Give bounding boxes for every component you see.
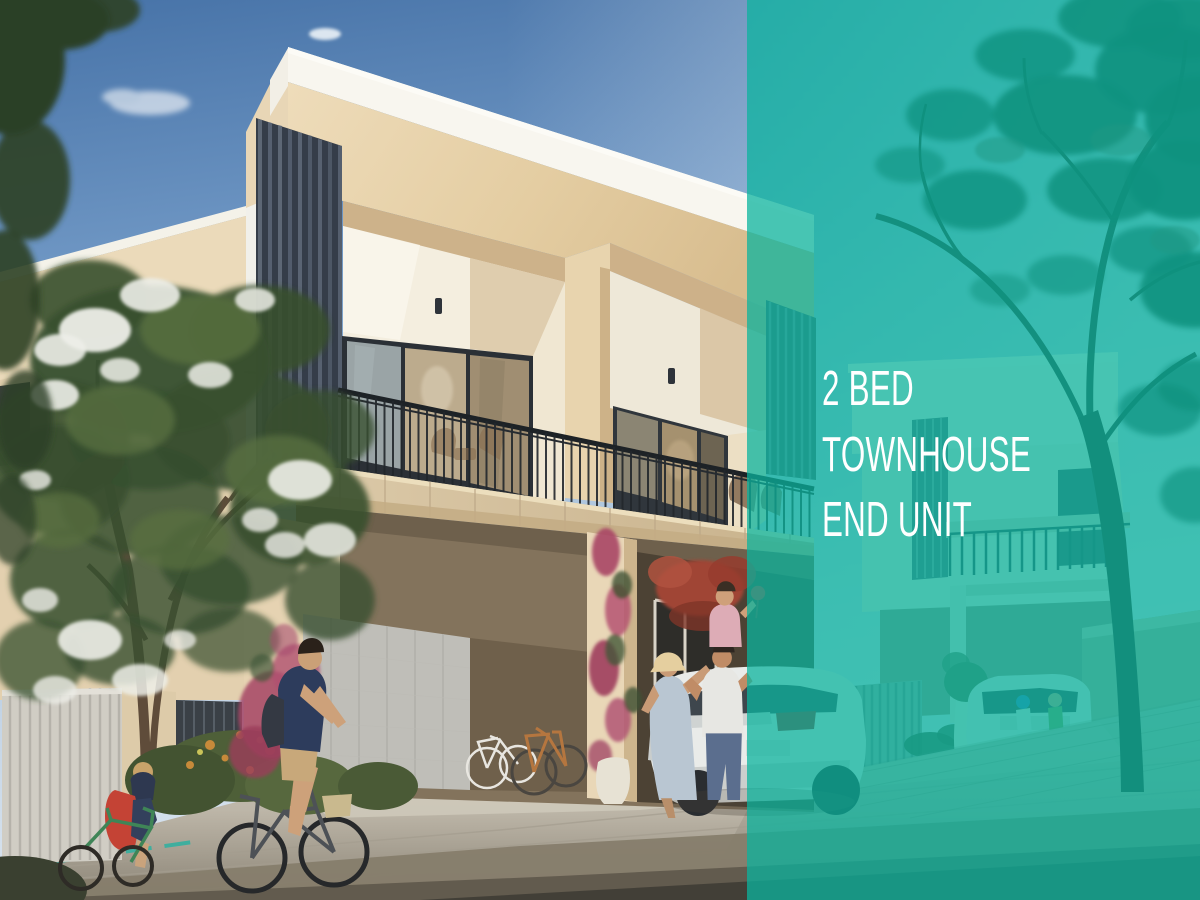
svg-text:TOWNHOUSE: TOWNHOUSE xyxy=(822,427,1031,482)
svg-text:END UNIT: END UNIT xyxy=(822,492,972,547)
svg-text:2 BED: 2 BED xyxy=(822,361,914,416)
